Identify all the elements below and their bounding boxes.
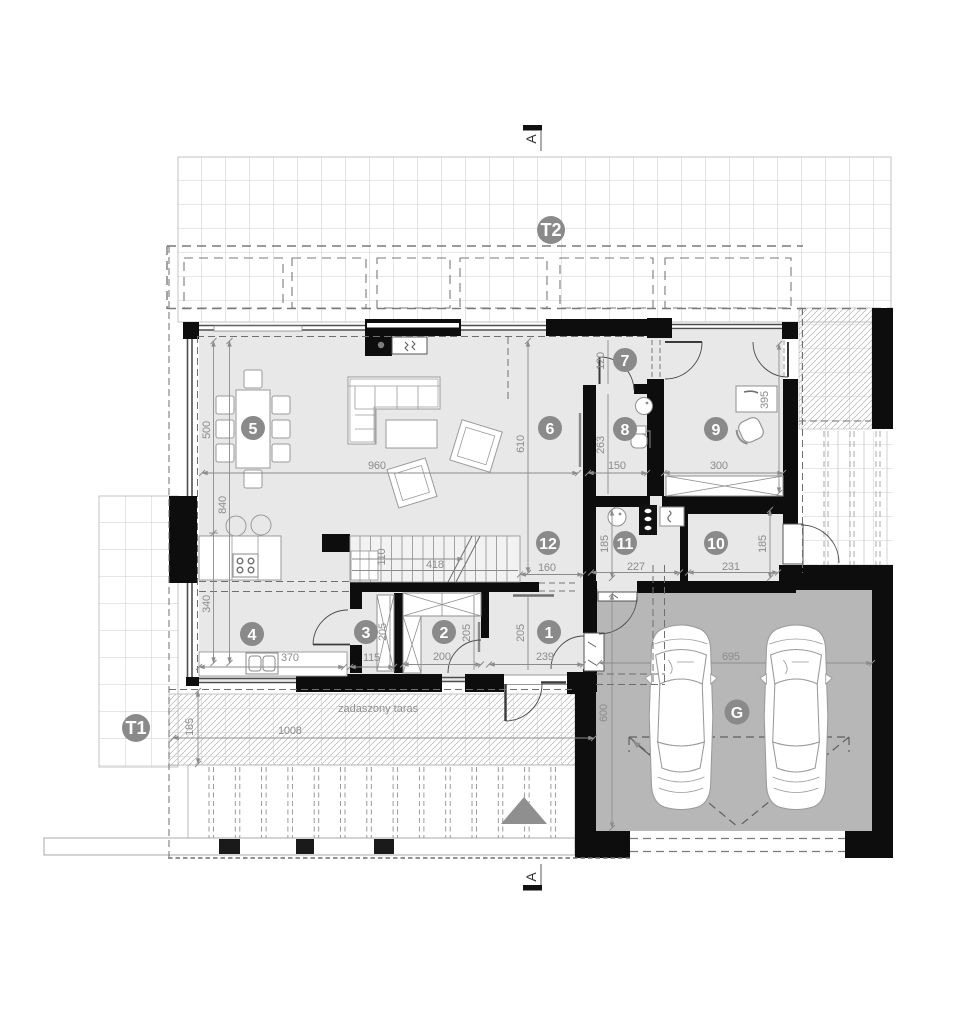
svg-text:231: 231 (722, 561, 740, 573)
svg-text:1008: 1008 (278, 725, 302, 737)
svg-text:395: 395 (759, 391, 771, 409)
svg-text:7: 7 (621, 353, 630, 370)
svg-text:1: 1 (545, 625, 554, 642)
svg-text:9: 9 (712, 422, 721, 439)
svg-text:T2: T2 (540, 220, 561, 240)
svg-text:340: 340 (201, 595, 213, 613)
svg-text:2: 2 (440, 625, 449, 642)
svg-text:G: G (731, 705, 743, 722)
svg-text:205: 205 (377, 623, 389, 641)
svg-text:3: 3 (362, 625, 371, 642)
svg-text:370: 370 (281, 652, 299, 664)
svg-text:6: 6 (546, 421, 555, 438)
svg-text:115: 115 (363, 652, 380, 664)
svg-text:11: 11 (617, 536, 634, 553)
svg-text:227: 227 (627, 561, 645, 573)
svg-text:239: 239 (536, 651, 554, 663)
svg-text:120: 120 (595, 352, 607, 370)
svg-text:200: 200 (433, 651, 451, 663)
svg-text:205: 205 (515, 624, 527, 642)
svg-text:5: 5 (249, 421, 258, 438)
svg-text:A: A (523, 134, 539, 144)
svg-text:610: 610 (515, 435, 527, 453)
svg-text:300: 300 (710, 460, 728, 472)
svg-text:840: 840 (217, 496, 229, 514)
svg-text:695: 695 (722, 651, 740, 663)
svg-text:4: 4 (248, 627, 257, 644)
svg-text:zadaszony taras: zadaszony taras (338, 703, 419, 715)
svg-text:500: 500 (201, 421, 213, 439)
svg-text:263: 263 (595, 436, 607, 454)
svg-text:600: 600 (598, 704, 610, 722)
svg-text:T1: T1 (125, 718, 146, 738)
svg-text:160: 160 (538, 562, 556, 574)
svg-text:418: 418 (426, 559, 444, 571)
svg-text:110: 110 (376, 548, 388, 565)
svg-text:185: 185 (599, 535, 611, 553)
svg-text:960: 960 (368, 460, 386, 472)
svg-text:10: 10 (707, 536, 725, 553)
svg-text:185: 185 (757, 535, 769, 553)
svg-text:8: 8 (621, 422, 630, 439)
svg-text:12: 12 (539, 536, 557, 553)
svg-text:205: 205 (461, 624, 473, 642)
svg-text:A: A (523, 872, 539, 882)
svg-text:150: 150 (608, 460, 626, 472)
svg-text:185: 185 (184, 718, 196, 736)
